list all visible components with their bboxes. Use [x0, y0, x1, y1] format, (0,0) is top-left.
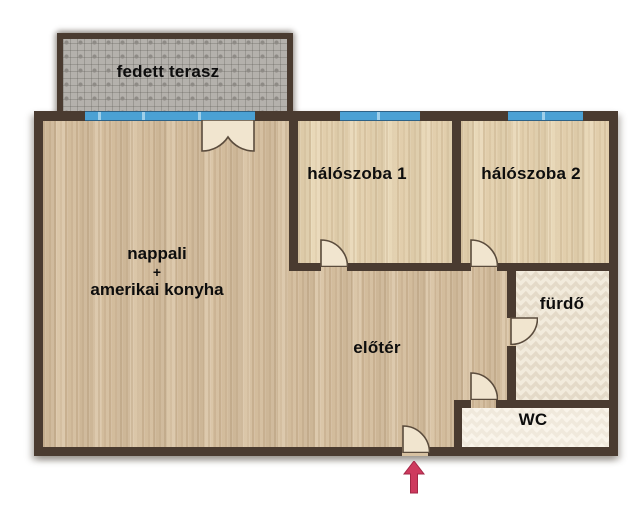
bedroom1-door-icon [320, 239, 348, 267]
living-label-plus: + [90, 264, 223, 280]
wall-bedrooms-bottom-b [347, 263, 471, 271]
wc-door-icon [470, 372, 498, 400]
terrace-double-door-icon [201, 120, 255, 153]
wall-bedroom1-bedroom2 [452, 111, 461, 263]
floor-plan: fedett terasz [0, 0, 640, 515]
window-bedroom2 [508, 111, 583, 121]
window-divider [198, 112, 201, 120]
wall-wc-left [454, 400, 462, 456]
bedroom2-door-icon [470, 239, 498, 267]
window-divider [142, 112, 145, 120]
room-label-bedroom1: hálószoba 1 [307, 164, 407, 184]
room-label-bedroom2: hálószoba 2 [481, 164, 581, 184]
wall-bedrooms-bottom-a [289, 263, 321, 271]
living-label-line1: nappali [90, 244, 223, 264]
room-label-wc: WC [519, 410, 548, 430]
room-label-hall: előtér [353, 338, 401, 358]
room-label-bathroom: fürdő [540, 294, 584, 314]
window-bedroom1 [340, 111, 420, 121]
window-divider [542, 112, 545, 120]
window-divider [98, 112, 101, 120]
living-label-line2: amerikai konyha [90, 280, 223, 300]
entrance-arrow-icon [403, 461, 425, 494]
room-label-terrace: fedett terasz [117, 62, 220, 82]
bathroom-door-icon [510, 317, 538, 345]
wall-bathroom-left-b [507, 346, 516, 408]
entrance-door-icon [402, 425, 430, 453]
window-divider [377, 112, 380, 120]
wall-bathroom-left-a [507, 263, 516, 318]
wall-living-bedroom1 [289, 111, 298, 271]
wall-outer-left [34, 111, 43, 456]
wall-outer-bottom-left [34, 447, 402, 456]
wall-wc-top-b [496, 400, 618, 408]
room-label-living: nappali + amerikai konyha [90, 244, 223, 300]
